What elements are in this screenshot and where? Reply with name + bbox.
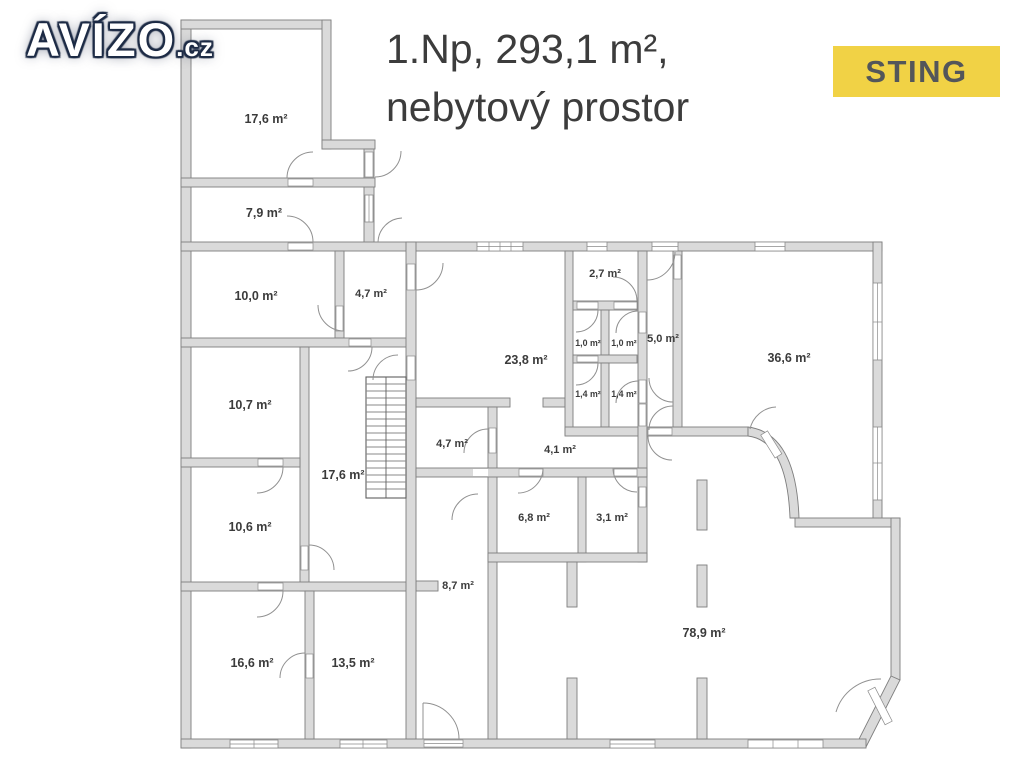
sting-badge: STING [833, 46, 1000, 97]
plan-title: 1.Np, 293,1 m², nebytový prostor [386, 20, 689, 136]
room-label-78-9: 78,9 m² [682, 626, 725, 640]
room-label-7-9: 7,9 m² [246, 206, 282, 220]
room-label-23-8: 23,8 m² [504, 353, 547, 367]
room-label-6-8: 6,8 m² [518, 512, 550, 524]
screenshot-stage: 17,6 m² 7,9 m² 10,0 m² 4,7 m² 10,7 m² 17… [0, 0, 1024, 768]
room-label-10-0: 10,0 m² [234, 289, 277, 303]
window-notch [365, 195, 373, 222]
avizo-logo-suffix: .cz [176, 32, 214, 62]
room-label-1-0-a: 1,0 m² [575, 338, 600, 348]
avizo-logo: AVÍZO.cz [26, 12, 214, 67]
plan-title-line1: 1.Np, 293,1 m², [386, 20, 689, 78]
window-right-upper [873, 283, 882, 360]
plan-title-line2: nebytový prostor [386, 78, 689, 136]
window-top-23-8 [477, 242, 523, 251]
room-label-13-5: 13,5 m² [331, 656, 374, 670]
window-top-2-7 [587, 242, 607, 251]
room-label-4-7-top: 4,7 m² [355, 288, 387, 300]
room-label-16-6: 16,6 m² [230, 656, 273, 670]
room-label-top-17-6: 17,6 m² [244, 112, 287, 126]
room-label-hall-17-6: 17,6 m² [321, 468, 364, 482]
staircase [366, 377, 406, 498]
window-bottom-78-9-a [610, 740, 655, 748]
room-label-4-7-mid: 4,7 m² [436, 438, 468, 450]
sting-badge-label: STING [865, 54, 967, 90]
window-right-lower [873, 427, 882, 500]
window-bottom-16-6 [230, 740, 278, 748]
room-label-1-4-b: 1,4 m² [611, 389, 636, 399]
window-top-corridor [652, 242, 678, 251]
room-label-10-6: 10,6 m² [228, 520, 271, 534]
avizo-logo-text: AVÍZO [26, 13, 176, 66]
window-top-36-6 [755, 242, 785, 251]
window-bottom-13-5 [340, 740, 387, 748]
room-label-5-0: 5,0 m² [647, 333, 679, 345]
room-label-10-7: 10,7 m² [228, 398, 271, 412]
room-label-8-7: 8,7 m² [442, 580, 474, 592]
room-label-2-7: 2,7 m² [589, 268, 621, 280]
room-label-1-4-a: 1,4 m² [575, 389, 600, 399]
room-label-1-0-b: 1,0 m² [611, 338, 636, 348]
window-bottom-78-9-b [748, 740, 823, 748]
room-label-3-1: 3,1 m² [596, 512, 628, 524]
room-label-4-1: 4,1 m² [544, 444, 576, 456]
room-label-36-6: 36,6 m² [767, 351, 810, 365]
